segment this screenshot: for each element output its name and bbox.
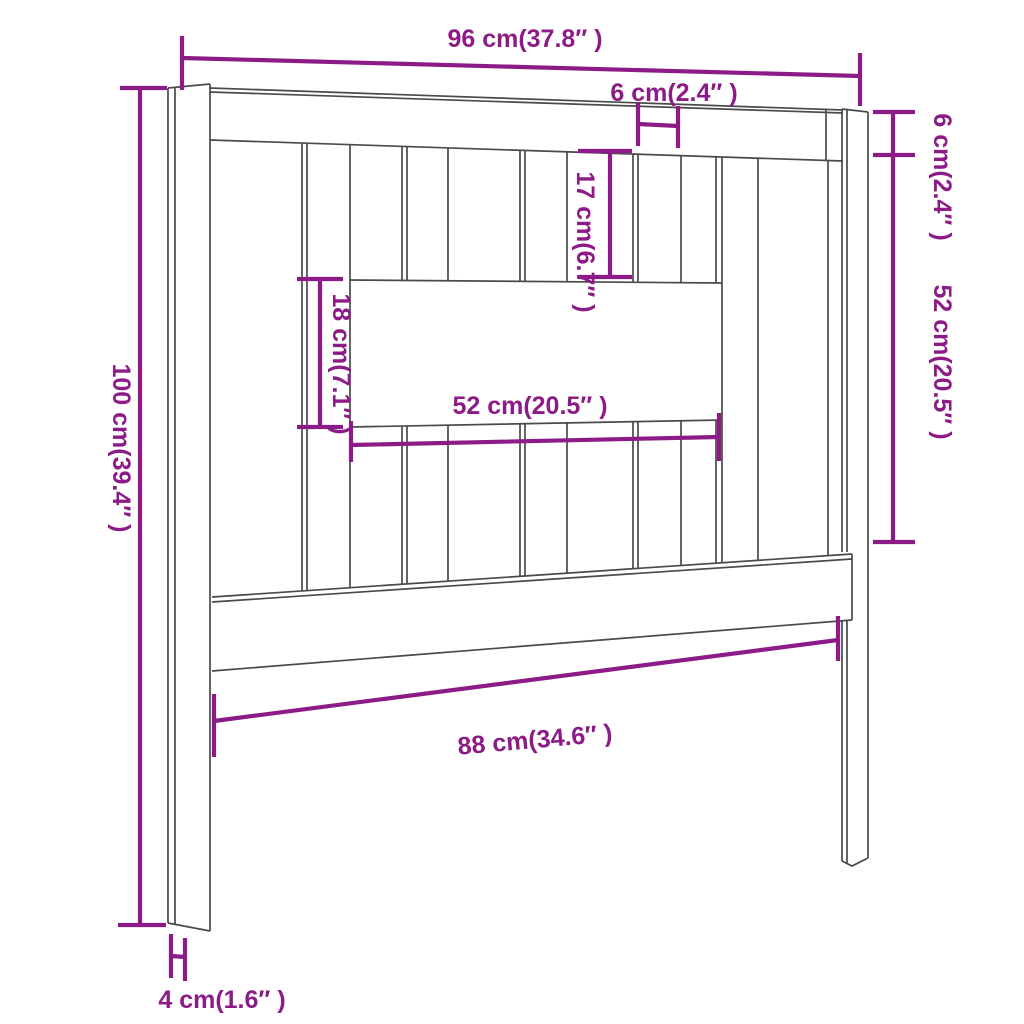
label-slat-gap: 6 cm(2.4″ ) [610, 79, 737, 107]
dim-line-slat-gap [638, 103, 678, 148]
label-top-rail-height: 6 cm(2.4″ ) [928, 113, 956, 240]
label-upper-slat-height: 17 cm(6.7″ ) [571, 171, 599, 312]
dim-line-right-side [873, 112, 915, 542]
label-opening-width: 52 cm(20.5″ ) [452, 392, 607, 420]
label-lower-inner-width: 88 cm(34.6″ ) [457, 719, 614, 760]
dim-line-leg-width [171, 934, 185, 981]
headboard-wireframe [168, 84, 868, 931]
label-opening-height: 18 cm(7.1″ ) [327, 293, 355, 434]
dimension-lines [118, 36, 915, 981]
headboard-diagram-canvas: 96 cm(37.8″ ) 6 cm(2.4″ ) 6 cm(2.4″ ) 52… [0, 0, 1024, 1024]
slats-upper-band [402, 146, 716, 283]
right-post [842, 109, 868, 866]
label-overall-width: 96 cm(37.8″ ) [447, 25, 602, 53]
top-rail [210, 88, 843, 161]
label-leg-width: 4 cm(1.6″ ) [158, 986, 285, 1014]
left-post [168, 84, 210, 931]
dimension-diagram: 96 cm(37.8″ ) 6 cm(2.4″ ) 6 cm(2.4″ ) 52… [0, 0, 1024, 1024]
label-side-panel-height: 52 cm(20.5″ ) [928, 284, 956, 439]
label-total-height: 100 cm(39.4″ ) [107, 363, 135, 532]
bottom-rail [212, 554, 852, 671]
slats-full-height [302, 143, 828, 591]
